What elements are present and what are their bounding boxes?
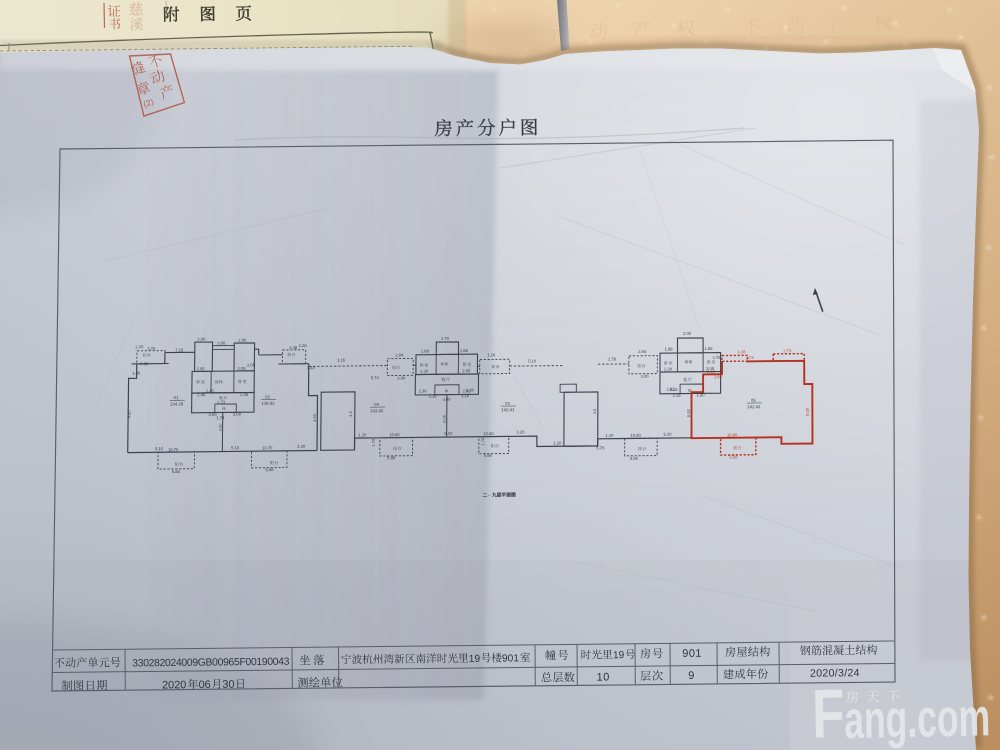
svg-text:2.45: 2.45 (240, 392, 249, 397)
svg-text:4.3: 4.3 (348, 410, 353, 416)
svg-text:2.73: 2.73 (745, 355, 754, 360)
svg-text:10.70: 10.70 (262, 445, 273, 450)
svg-text:3.69: 3.69 (443, 397, 452, 402)
svg-text:2.70: 2.70 (441, 336, 450, 341)
svg-text:30: 30 (222, 679, 234, 691)
svg-text:4.50: 4.50 (312, 413, 317, 422)
svg-text:3.00: 3.00 (641, 374, 650, 379)
svg-text:5.58: 5.58 (630, 456, 639, 461)
svg-text:05: 05 (751, 398, 756, 403)
svg-text:1.16: 1.16 (337, 358, 346, 363)
svg-text:10.80: 10.80 (483, 431, 494, 436)
svg-text:1.68: 1.68 (714, 374, 723, 379)
svg-text:01: 01 (174, 395, 179, 400)
svg-text:1.88: 1.88 (704, 346, 713, 351)
svg-text:5.58: 5.58 (729, 455, 738, 460)
svg-text:10.80: 10.80 (389, 432, 400, 437)
svg-text:1.80: 1.80 (696, 392, 705, 397)
svg-text:1.88: 1.88 (665, 346, 674, 351)
svg-text:5.88: 5.88 (172, 469, 181, 474)
svg-text:1.16: 1.16 (487, 352, 496, 357)
svg-text:19: 19 (469, 654, 481, 665)
svg-text:3.18: 3.18 (461, 393, 470, 398)
svg-text:5.74: 5.74 (371, 375, 380, 380)
svg-text:2.28: 2.28 (299, 343, 308, 348)
svg-text:2.00: 2.00 (197, 337, 206, 342)
svg-text:2.30: 2.30 (466, 388, 475, 393)
svg-text:1.78: 1.78 (480, 437, 485, 446)
svg-text:9: 9 (688, 670, 694, 682)
svg-text:2.78: 2.78 (608, 356, 617, 361)
svg-text:2.20: 2.20 (420, 369, 429, 374)
svg-text:06: 06 (199, 679, 211, 691)
svg-text:04: 04 (374, 402, 379, 407)
svg-text:7.15: 7.15 (175, 348, 184, 353)
svg-text:3.38: 3.38 (289, 345, 298, 350)
svg-text:2.05: 2.05 (247, 363, 256, 368)
svg-text:2.18: 2.18 (669, 387, 678, 392)
svg-text:02: 02 (265, 394, 270, 399)
svg-text:3.20: 3.20 (297, 444, 306, 449)
svg-text:4.50: 4.50 (218, 423, 223, 432)
svg-text:330282024009GB00965F00190043: 330282024009GB00965F00190043 (132, 657, 290, 670)
svg-text:1.74: 1.74 (216, 415, 225, 420)
svg-text:~: ~ (488, 493, 491, 498)
svg-text:2.00: 2.00 (238, 338, 247, 343)
svg-text:2.73: 2.73 (217, 400, 226, 405)
svg-text:10.80: 10.80 (630, 433, 641, 438)
svg-text:2.05: 2.05 (197, 366, 206, 371)
svg-text:5.88: 5.88 (387, 455, 396, 460)
svg-text:1.40: 1.40 (307, 365, 316, 370)
svg-text:1.88: 1.88 (460, 348, 469, 353)
svg-text:3.00: 3.00 (397, 376, 406, 381)
svg-text:8.08: 8.08 (686, 409, 691, 418)
svg-text:2.94: 2.94 (638, 349, 647, 354)
svg-text:5.70: 5.70 (596, 445, 605, 450)
svg-text:1.20: 1.20 (605, 433, 614, 438)
svg-text:4.5: 4.5 (592, 408, 597, 414)
svg-text:2.18: 2.18 (707, 369, 716, 374)
svg-text:1.88: 1.88 (421, 348, 430, 353)
svg-text:4.60: 4.60 (127, 410, 132, 419)
svg-text:2.20: 2.20 (135, 344, 144, 349)
svg-text:901: 901 (682, 648, 702, 660)
svg-text:2.73: 2.73 (783, 348, 792, 353)
svg-text:5.10: 5.10 (444, 431, 453, 436)
svg-text:3.00: 3.00 (233, 412, 242, 417)
svg-text:2.45: 2.45 (206, 389, 215, 394)
svg-text:3.20: 3.20 (516, 429, 525, 434)
svg-text:10.80: 10.80 (727, 432, 738, 437)
svg-text:2020: 2020 (162, 679, 186, 691)
svg-text:3.00: 3.00 (217, 340, 226, 345)
svg-text:5.10: 5.10 (528, 358, 537, 363)
svg-text:6.06: 6.06 (442, 414, 447, 423)
svg-text:901: 901 (502, 653, 519, 664)
svg-text:138.92: 138.92 (261, 401, 275, 406)
svg-text:10.70: 10.70 (168, 447, 179, 452)
svg-text:10: 10 (597, 671, 610, 683)
svg-text:8.08: 8.08 (805, 407, 810, 416)
svg-text:5.88: 5.88 (265, 467, 274, 472)
svg-text:F: F (811, 675, 845, 750)
svg-text:5.88: 5.88 (484, 453, 493, 458)
svg-text:5.10: 5.10 (663, 432, 672, 437)
svg-text:142.42: 142.42 (370, 408, 384, 413)
svg-text:5.10: 5.10 (231, 445, 240, 450)
svg-text:2.94: 2.94 (395, 353, 404, 358)
svg-text:134.28: 134.28 (170, 401, 184, 406)
svg-text:1.40: 1.40 (132, 371, 141, 376)
svg-text:2.78: 2.78 (712, 355, 721, 360)
svg-text:2.30: 2.30 (419, 388, 428, 393)
svg-text:19: 19 (613, 650, 625, 661)
svg-text:5.10: 5.10 (155, 446, 164, 451)
svg-text:3.70: 3.70 (147, 346, 156, 351)
svg-text:ang.com: ang.com (844, 688, 991, 750)
svg-text:1.78: 1.78 (371, 438, 376, 447)
svg-text:2.05: 2.05 (237, 366, 246, 371)
svg-text:1.20: 1.20 (553, 440, 562, 445)
svg-text:2.45: 2.45 (197, 392, 206, 397)
svg-text:0.90: 0.90 (140, 361, 149, 366)
svg-text:1.16: 1.16 (737, 349, 746, 354)
svg-text:2.05: 2.05 (462, 368, 471, 373)
svg-text:2.00: 2.00 (683, 331, 692, 336)
svg-text:2.18: 2.18 (672, 393, 681, 398)
svg-text:03: 03 (505, 401, 510, 406)
svg-text:3.18: 3.18 (429, 394, 438, 399)
svg-text:1.20: 1.20 (358, 432, 367, 437)
svg-text:2.20: 2.20 (664, 366, 673, 371)
svg-text:142.42: 142.42 (747, 404, 761, 409)
svg-text:142.41: 142.41 (501, 407, 515, 412)
